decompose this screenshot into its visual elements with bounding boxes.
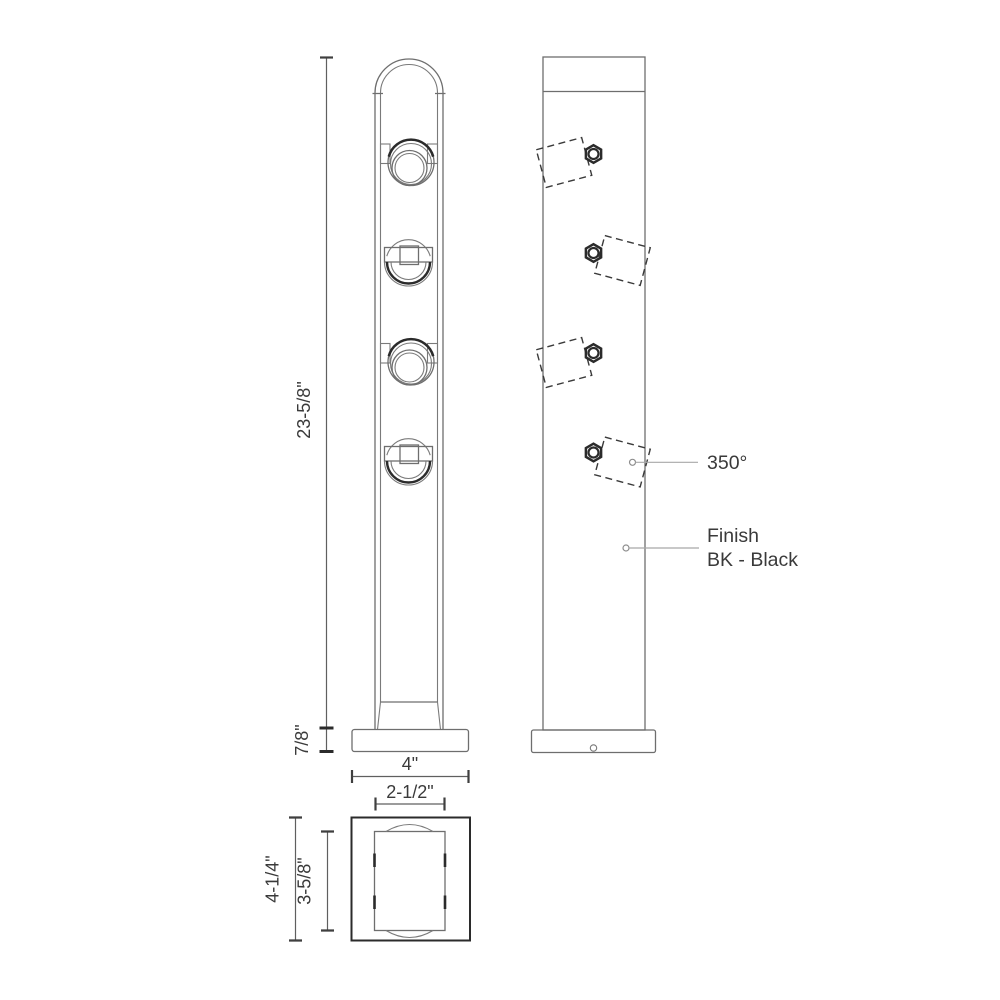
finish-callout: Finish BK - Black	[623, 525, 798, 571]
light-head-3	[381, 339, 438, 385]
front-view: 23-5/8" 7/8" 4" 2-1/2"	[292, 58, 469, 811]
rotation-callout-label: 350°	[707, 452, 747, 474]
side-head-3	[536, 338, 604, 388]
front-base-plate	[352, 730, 469, 752]
technical-drawing-svg: 23-5/8" 7/8" 4" 2-1/2"	[0, 0, 1000, 1000]
dimension-base-width: 4"	[352, 754, 469, 783]
spec-sheet-drawing: 23-5/8" 7/8" 4" 2-1/2"	[0, 0, 1000, 1000]
dimension-body-depth: 3-5/8"	[295, 832, 335, 931]
top-front-arc	[386, 825, 433, 832]
top-rear-arc	[386, 931, 433, 938]
front-inner-profile	[381, 65, 438, 703]
light-head-2	[385, 240, 433, 286]
top-bracket-ticks	[375, 854, 446, 910]
light-head-4	[385, 439, 433, 485]
top-inner-body	[375, 832, 446, 931]
dimension-base-height: 7/8"	[292, 724, 334, 755]
base-depth-label: 4-1/4"	[263, 855, 283, 902]
finish-callout-line1: Finish	[707, 525, 759, 547]
base-screw-hole	[590, 745, 596, 751]
adjust-knob-4	[583, 442, 604, 463]
side-base-plate	[532, 730, 656, 753]
adjust-knob-2	[583, 243, 604, 264]
adjust-knob-1	[583, 144, 604, 165]
body-depth-label: 3-5/8"	[295, 857, 315, 904]
base-height-label: 7/8"	[292, 724, 312, 755]
overall-height-label: 23-5/8"	[294, 381, 314, 438]
front-outer-profile	[375, 59, 443, 730]
dimension-overall-height: 23-5/8"	[294, 58, 333, 729]
side-view: 350° Finish BK - Black	[532, 57, 799, 753]
side-head-2	[583, 236, 650, 286]
top-outer-square	[352, 818, 471, 941]
top-view: 4-1/4" 3-5/8"	[263, 818, 471, 941]
body-width-label: 2-1/2"	[386, 782, 433, 802]
side-head-1	[536, 138, 604, 188]
adjust-knob-3	[583, 343, 604, 364]
dimension-body-width: 2-1/2"	[376, 782, 445, 811]
front-lower-mount	[378, 702, 441, 730]
light-head-1	[381, 140, 438, 186]
finish-callout-line2: BK - Black	[707, 549, 798, 571]
base-width-label: 4"	[402, 754, 418, 774]
